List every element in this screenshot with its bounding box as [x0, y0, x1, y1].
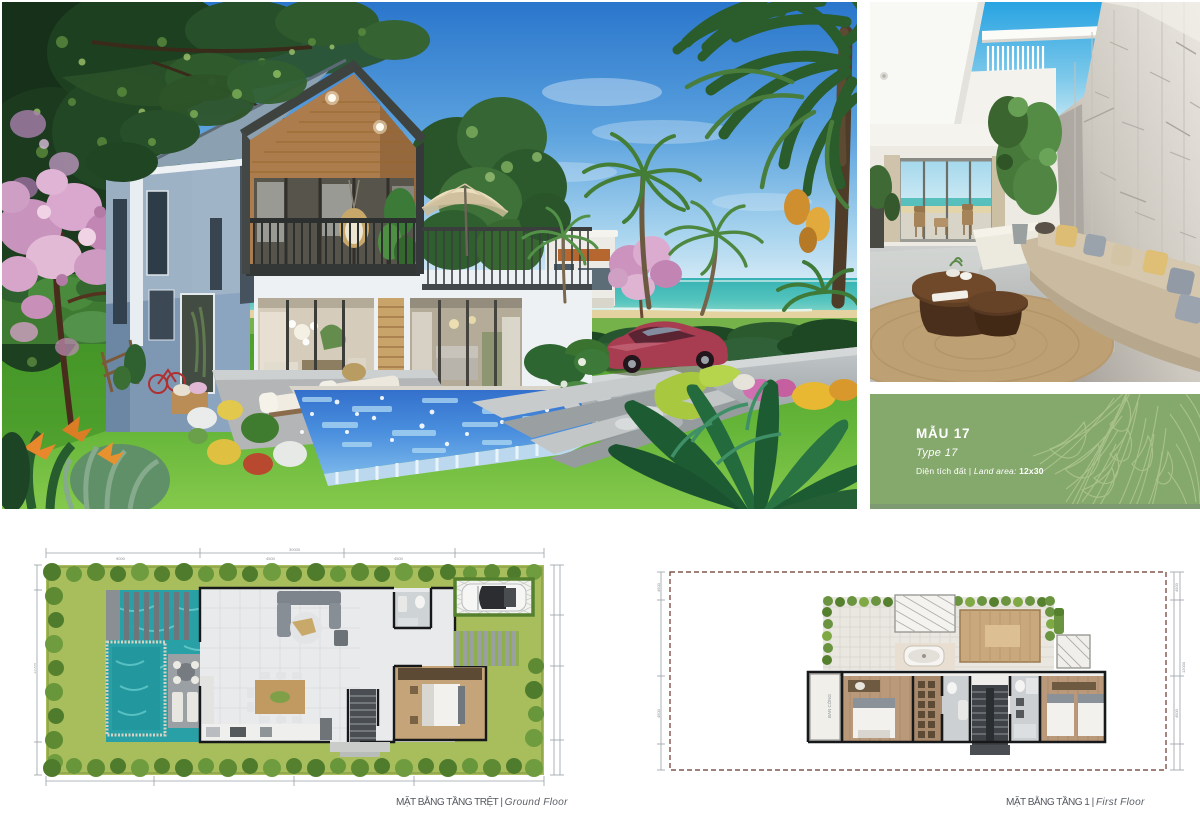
svg-text:4500: 4500	[394, 556, 404, 561]
svg-text:4500: 4500	[1174, 708, 1179, 718]
svg-text:4500: 4500	[1174, 582, 1179, 592]
svg-text:4500: 4500	[266, 556, 276, 561]
svg-text:30000: 30000	[289, 547, 301, 552]
svg-text:4500: 4500	[656, 708, 661, 718]
svg-text:4500: 4500	[656, 582, 661, 592]
svg-text:12000: 12000	[1181, 661, 1186, 673]
svg-text:9000: 9000	[116, 556, 126, 561]
svg-text:BAN CÔNG: BAN CÔNG	[826, 693, 832, 718]
svg-text:12000: 12000	[34, 662, 37, 674]
